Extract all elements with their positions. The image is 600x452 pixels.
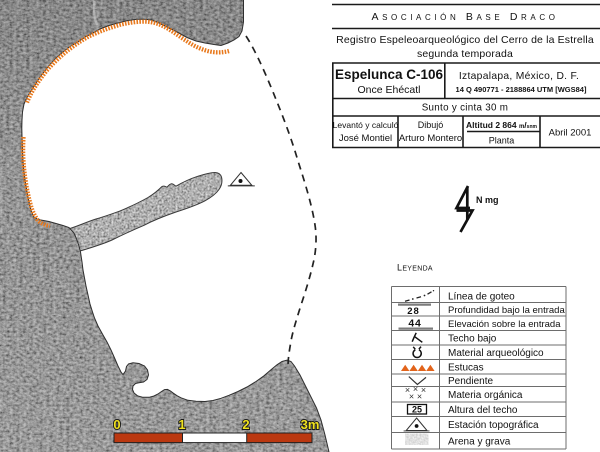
svg-text:Dibujó: Dibujó xyxy=(418,120,444,130)
svg-text:Materia orgánica: Materia orgánica xyxy=(448,390,523,401)
svg-text:Material arqueológico: Material arqueológico xyxy=(448,348,544,359)
svg-text:0: 0 xyxy=(113,417,120,432)
svg-text:Espelunca C-106: Espelunca C-106 xyxy=(335,67,444,82)
svg-text:Planta: Planta xyxy=(489,136,515,146)
svg-text:Pendiente: Pendiente xyxy=(448,376,493,387)
svg-text:Once Ehécatl: Once Ehécatl xyxy=(357,84,420,96)
svg-text:×: × xyxy=(417,392,422,402)
svg-text:Abril 2001: Abril 2001 xyxy=(549,128,592,139)
svg-text:Profundidad bajo la entrada: Profundidad bajo la entrada xyxy=(448,305,565,316)
svg-text:ASOCIACIÓN BASE DRACO: ASOCIACIÓN BASE DRACO xyxy=(371,11,558,23)
svg-text:LEYENDA: LEYENDA xyxy=(397,263,433,273)
svg-text:3m: 3m xyxy=(301,417,320,432)
svg-text:segunda temporada: segunda temporada xyxy=(417,48,513,60)
svg-text:×: × xyxy=(409,392,414,402)
svg-text:25: 25 xyxy=(412,405,422,415)
svg-text:Iztapalapa, México, D. F.: Iztapalapa, México, D. F. xyxy=(459,71,579,82)
svg-text:Elevación sobre la entrada: Elevación sobre la entrada xyxy=(448,319,561,330)
svg-text:Levantó y calculó: Levantó y calculó xyxy=(333,120,399,130)
svg-text:14 Q 490771 - 2188864 UTM [WGS: 14 Q 490771 - 2188864 UTM [WGS84] xyxy=(456,85,587,94)
svg-text:Altitud 2 864 m/snm: Altitud 2 864 m/snm xyxy=(466,120,537,130)
svg-text:28: 28 xyxy=(407,306,420,317)
svg-text:José Montiel: José Montiel xyxy=(339,133,392,144)
svg-text:Altura del techo: Altura del techo xyxy=(448,405,518,416)
svg-text:Arturo Montero: Arturo Montero xyxy=(399,133,462,144)
svg-text:2: 2 xyxy=(242,417,249,432)
svg-text:Estucas: Estucas xyxy=(448,363,484,374)
svg-text:Arena y grava: Arena y grava xyxy=(448,437,511,448)
svg-text:N mg: N mg xyxy=(476,195,499,205)
svg-text:Sunto y cinta 30 m: Sunto y cinta 30 m xyxy=(422,103,509,114)
svg-text:Registro Espeleoarqueológico d: Registro Espeleoarqueológico del Cerro d… xyxy=(336,34,594,46)
svg-text:1: 1 xyxy=(178,417,185,432)
svg-text:Línea de goteo: Línea de goteo xyxy=(448,292,515,303)
svg-text:Techo bajo: Techo bajo xyxy=(448,334,497,345)
svg-text:Estación topográfica: Estación topográfica xyxy=(448,420,539,431)
